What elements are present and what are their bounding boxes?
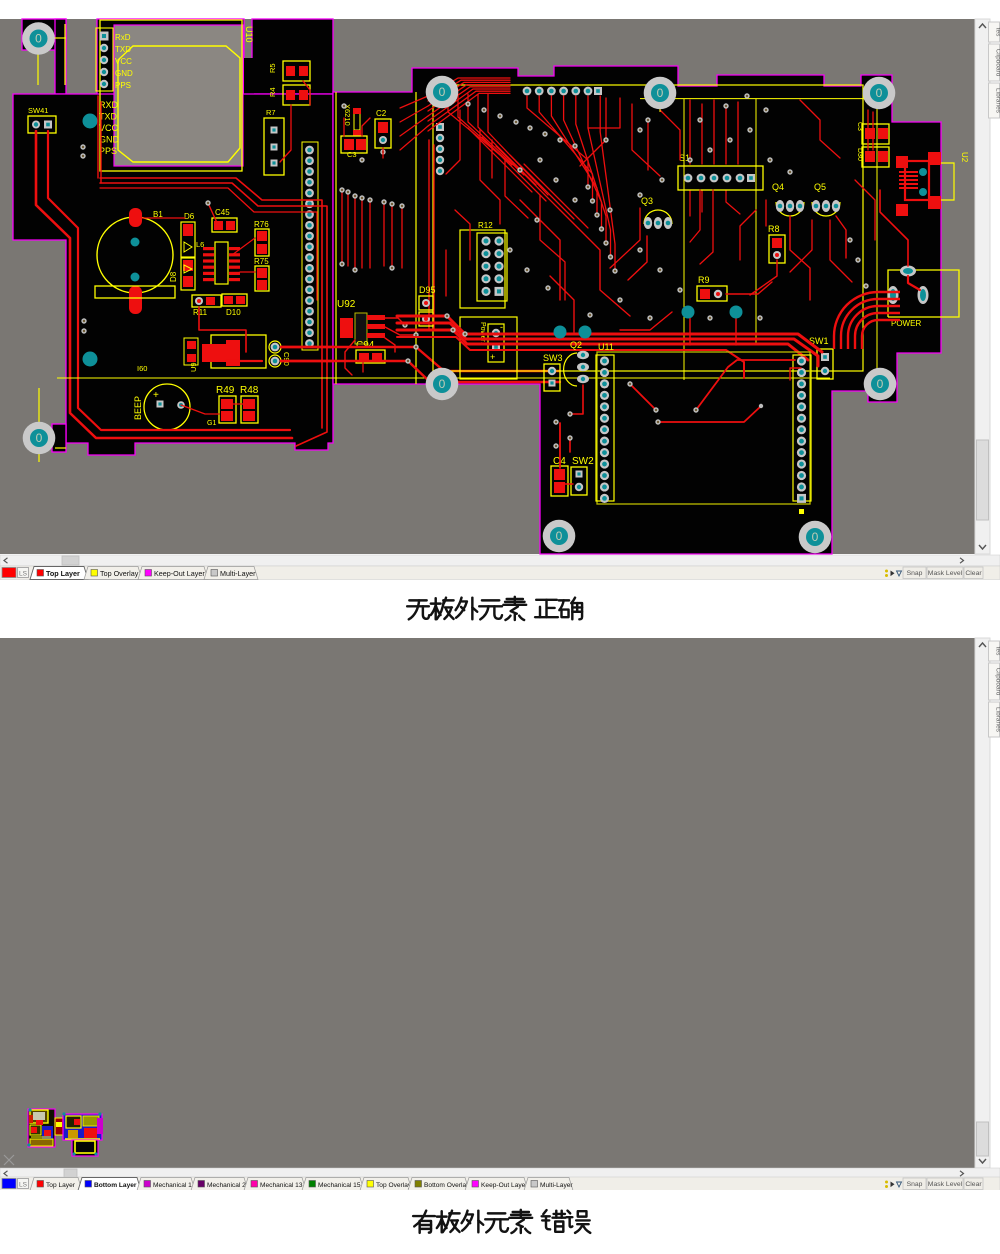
svg-text:SW41: SW41 xyxy=(28,106,48,115)
svg-text:D30: D30 xyxy=(856,148,863,161)
svg-text:R8: R8 xyxy=(768,224,780,234)
svg-text:0: 0 xyxy=(35,32,42,46)
svg-text:C3: C3 xyxy=(856,122,863,131)
svg-text:Q5: Q5 xyxy=(814,182,826,192)
svg-text:SW3: SW3 xyxy=(543,353,563,363)
svg-text:Clear: Clear xyxy=(965,570,982,577)
svg-text:Clear: Clear xyxy=(965,1181,982,1188)
svg-text:G1: G1 xyxy=(207,420,216,427)
svg-text:U11: U11 xyxy=(598,342,614,352)
svg-text:Bottom Overlay: Bottom Overlay xyxy=(424,1182,470,1189)
svg-text:Mask Level: Mask Level xyxy=(928,1181,963,1188)
svg-text:Q3: Q3 xyxy=(641,196,653,206)
svg-text:-: - xyxy=(500,322,503,332)
svg-text:R7: R7 xyxy=(266,108,276,117)
svg-text:0: 0 xyxy=(36,431,43,445)
svg-text:R48: R48 xyxy=(240,385,259,396)
svg-text:PPS: PPS xyxy=(99,146,117,156)
svg-text:Snap: Snap xyxy=(907,570,923,577)
svg-text:D10: D10 xyxy=(226,308,241,317)
svg-text:TXD: TXD xyxy=(115,45,131,54)
svg-text:R49: R49 xyxy=(216,385,235,396)
svg-text:R4: R4 xyxy=(268,87,277,97)
svg-text:0: 0 xyxy=(439,85,446,99)
svg-text:0: 0 xyxy=(876,86,883,100)
svg-text:tes: tes xyxy=(995,28,1000,37)
svg-text:Top Overlay: Top Overlay xyxy=(376,1182,412,1189)
svg-text:GND: GND xyxy=(99,135,120,145)
svg-text:0: 0 xyxy=(657,86,664,100)
svg-text:I60: I60 xyxy=(137,364,147,373)
svg-text:U2: U2 xyxy=(960,152,969,163)
svg-text:Mechanical 2: Mechanical 2 xyxy=(207,1182,246,1189)
svg-text:LS: LS xyxy=(19,1182,28,1189)
svg-text:R9: R9 xyxy=(698,275,710,285)
svg-text:Mechanical 13: Mechanical 13 xyxy=(260,1182,303,1189)
svg-text:D95: D95 xyxy=(419,285,436,295)
svg-text:Multi-Layer: Multi-Layer xyxy=(540,1182,573,1189)
svg-text:Q4: Q4 xyxy=(772,182,784,192)
svg-text:VCC: VCC xyxy=(99,123,119,133)
svg-text:R12: R12 xyxy=(478,221,493,230)
svg-text:RxD: RxD xyxy=(115,33,131,42)
svg-text:Top Layer: Top Layer xyxy=(46,569,80,578)
svg-text:VCC: VCC xyxy=(115,57,132,66)
svg-text:D8: D8 xyxy=(169,271,178,282)
svg-text:D6: D6 xyxy=(184,212,195,221)
svg-text:Snap: Snap xyxy=(907,1181,923,1188)
svg-text:BEEP: BEEP xyxy=(133,396,143,420)
svg-text:U10: U10 xyxy=(244,26,254,43)
svg-text:Top Overlay: Top Overlay xyxy=(100,569,139,578)
svg-text:R11: R11 xyxy=(193,308,208,317)
svg-text:Libraries: Libraries xyxy=(995,88,1000,114)
svg-text:C2: C2 xyxy=(376,109,387,118)
svg-text:Mechanical 1: Mechanical 1 xyxy=(153,1182,192,1189)
svg-text:Top Layer: Top Layer xyxy=(46,1182,76,1189)
svg-text:U92: U92 xyxy=(337,299,356,310)
svg-text:+: + xyxy=(153,390,159,401)
svg-text:0: 0 xyxy=(439,377,446,391)
svg-text:Mechanical 15: Mechanical 15 xyxy=(318,1182,361,1189)
svg-text:C90: C90 xyxy=(282,352,291,366)
svg-text:RXD: RXD xyxy=(99,100,119,110)
svg-text:Keep-Out Layer: Keep-Out Layer xyxy=(154,569,205,578)
svg-text:LS: LS xyxy=(19,571,28,578)
svg-text:Q2: Q2 xyxy=(570,340,582,350)
svg-text:TXD: TXD xyxy=(99,112,118,122)
svg-text:Clipboard: Clipboard xyxy=(995,668,1000,696)
svg-text:Multi-Layer: Multi-Layer xyxy=(220,569,256,578)
svg-text:U9: U9 xyxy=(189,362,198,372)
svg-text:C3: C3 xyxy=(347,150,357,159)
svg-text:Clipboard: Clipboard xyxy=(995,49,1000,77)
svg-text:0: 0 xyxy=(556,529,563,543)
svg-text:+: + xyxy=(490,352,495,362)
svg-text:R75: R75 xyxy=(254,257,269,266)
svg-text:tes: tes xyxy=(995,647,1000,656)
svg-text:R76: R76 xyxy=(254,220,269,229)
svg-text:0: 0 xyxy=(877,377,884,391)
svg-text:GND: GND xyxy=(115,69,133,78)
svg-text:L6: L6 xyxy=(196,240,204,249)
svg-text:Mask Level: Mask Level xyxy=(928,570,963,577)
svg-text:Libraries: Libraries xyxy=(995,707,1000,733)
svg-text:C45: C45 xyxy=(215,208,230,217)
svg-text:Keep-Out Layer: Keep-Out Layer xyxy=(481,1182,528,1189)
svg-text:PPS: PPS xyxy=(115,81,131,90)
svg-text:SW2: SW2 xyxy=(572,456,594,467)
svg-text:Bottom Layer: Bottom Layer xyxy=(94,1182,137,1189)
svg-text:R5: R5 xyxy=(268,63,277,73)
svg-text:0: 0 xyxy=(812,530,819,544)
